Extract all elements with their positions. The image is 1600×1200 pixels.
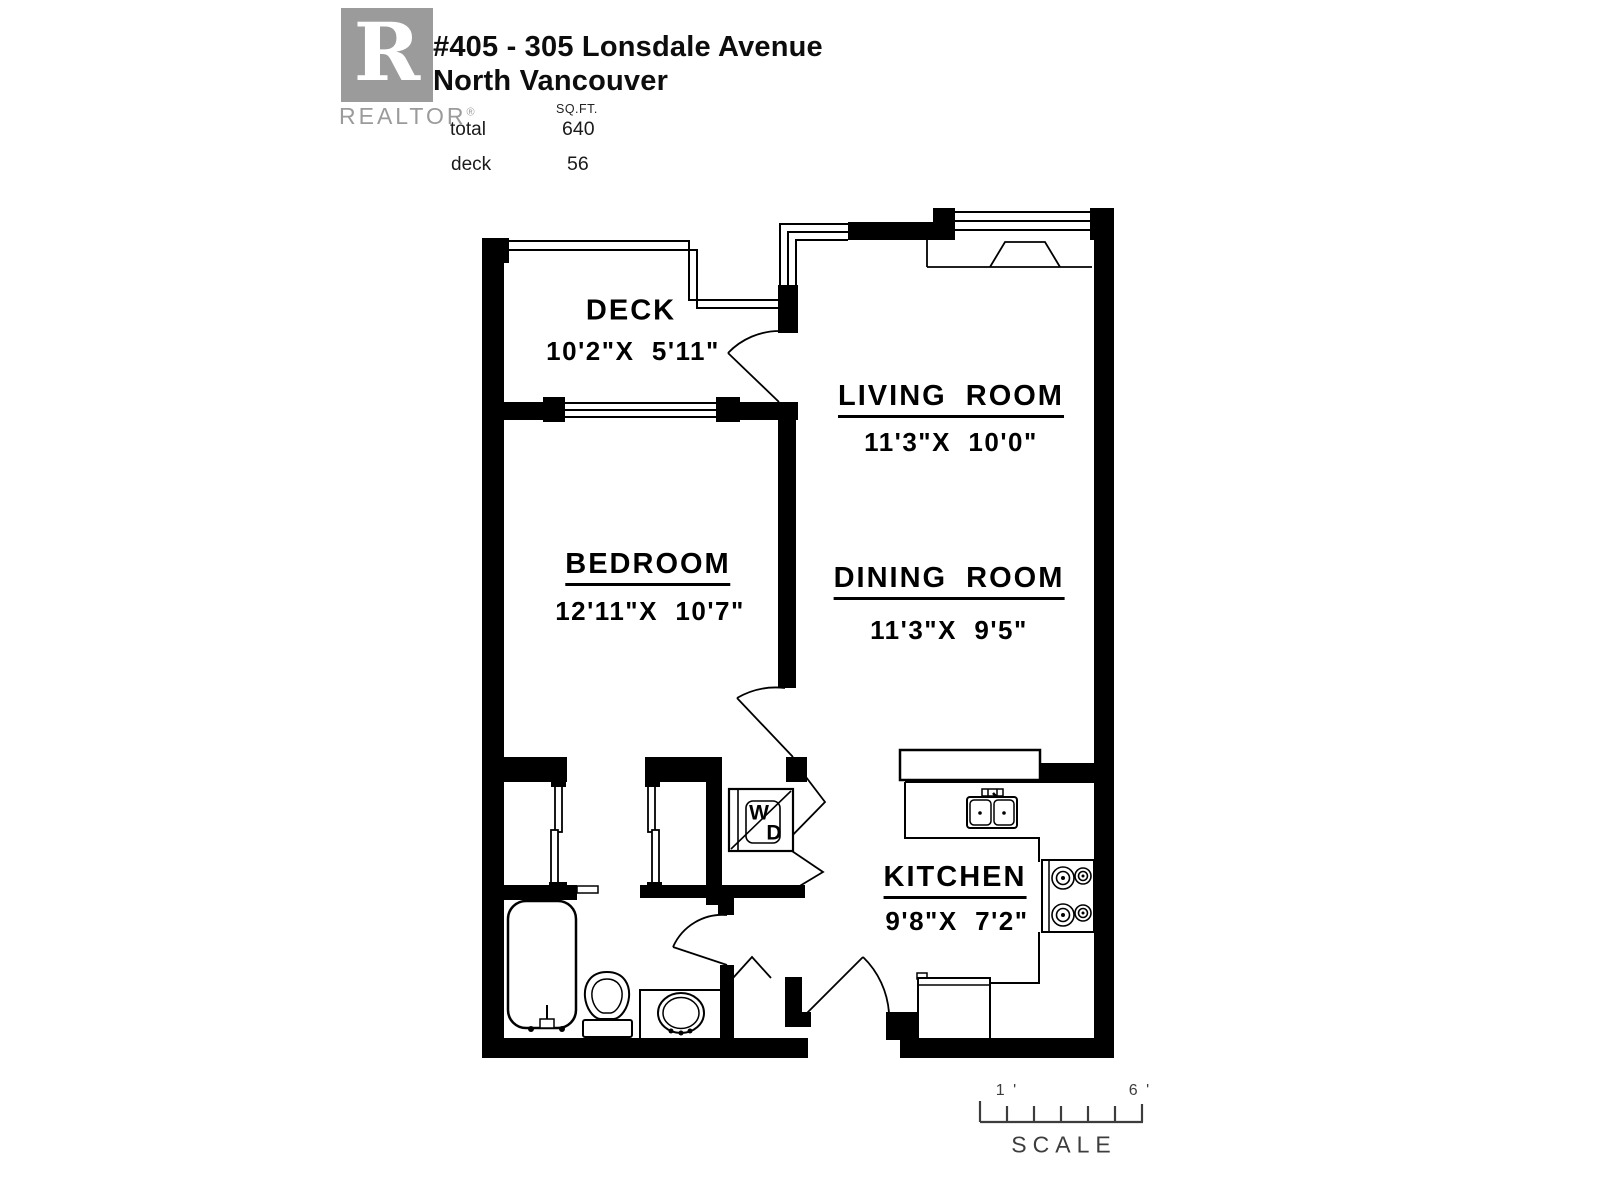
stove (1042, 860, 1094, 932)
toilet (583, 972, 632, 1037)
bedroom-door-leaf (737, 698, 793, 757)
closet-cap-3 (645, 776, 660, 787)
registered-mark: ® (467, 106, 475, 118)
wall-entry-stub (886, 1012, 917, 1040)
closet-cap-1 (551, 776, 566, 787)
island-counter (900, 750, 1040, 780)
wall-bottom-right (900, 1038, 1114, 1058)
entry-door-arc (863, 957, 889, 1013)
area-row-deck-label: deck (451, 154, 491, 176)
towel-bar (577, 886, 598, 893)
wall-bath-door-stub (718, 885, 734, 915)
scale-bar (980, 1101, 1143, 1122)
wall-entry-closet-foot (797, 1012, 811, 1027)
living-room-dimensions: 11'3"X 10'0" (864, 429, 1038, 455)
wall-bedroom-door-stub (786, 757, 807, 782)
bedroom-door-arc (737, 687, 785, 698)
dryer-label: D (766, 823, 781, 844)
wall-kitchen-pass (1036, 763, 1096, 782)
area-row-total-value: 640 (562, 118, 595, 141)
closet-sliding-doors (551, 782, 659, 886)
kitchen-dimensions: 9'8"X 7'2" (885, 908, 1028, 934)
bathroom-sink (640, 990, 723, 1038)
wall-top-notch (933, 208, 955, 240)
wall-top-right-corner (1090, 208, 1114, 240)
living-room-label: LIVING ROOM (838, 382, 1064, 418)
wall-closet-divider (706, 757, 722, 905)
floorplan-page: R REALTOR® #405 - 305 Lonsdale Avenue No… (0, 0, 1600, 1200)
area-row-total-label: total (450, 119, 486, 141)
balcony-door-leaf (728, 353, 779, 402)
wall-balcony-stub (778, 285, 798, 333)
floorplan-drawing (0, 0, 1600, 1200)
closet-cap-2 (549, 882, 567, 893)
entry-closet-bifold-door (733, 957, 771, 978)
area-unit-label: SQ.FT. (556, 102, 598, 116)
scale-start-label: 1 ' (996, 1082, 1018, 1100)
wall-window-cap-left (543, 397, 565, 422)
bathtub (508, 901, 576, 1032)
dining-room-label: DINING ROOM (834, 564, 1065, 600)
address-line2: North Vancouver (433, 64, 668, 98)
washer-label: W (749, 803, 769, 824)
wall-deck-corner-cap (482, 238, 509, 263)
scale-end-label: 6 ' (1129, 1082, 1151, 1100)
closet-cap-4 (647, 882, 662, 893)
wall-window-cap-right (716, 397, 740, 422)
address-line1: #405 - 305 Lonsdale Avenue (433, 30, 823, 64)
wall-left (482, 238, 504, 1058)
realtor-logo-letter: R (354, 12, 420, 92)
area-row-deck-value: 56 (567, 153, 589, 176)
wall-bottom-left (482, 1038, 808, 1058)
wall-bedroom-top-a (502, 402, 547, 420)
bathroom-door-leaf (673, 947, 727, 965)
fireplace (927, 240, 1092, 267)
refrigerator (917, 973, 990, 1040)
wall-bath-door-jamb (720, 965, 734, 1040)
deck-dimensions: 10'2"X 5'11" (546, 338, 720, 364)
bedroom-dimensions: 12'11"X 10'7" (555, 598, 745, 624)
entry-door-leaf (803, 957, 863, 1017)
balcony-door-arc (728, 331, 780, 353)
kitchen-sink (967, 789, 1017, 828)
bedroom-label: BEDROOM (565, 550, 730, 586)
wall-bedroom-dining-divider (778, 402, 796, 688)
scale-caption: SCALE (1011, 1132, 1116, 1159)
bathroom-door-arc (673, 915, 727, 947)
deck-label: DECK (586, 297, 676, 326)
kitchen-label: KITCHEN (884, 863, 1027, 899)
realtor-logo: R (341, 8, 433, 102)
wall-right (1094, 208, 1114, 1058)
dining-room-dimensions: 11'3"X 9'5" (870, 617, 1028, 643)
